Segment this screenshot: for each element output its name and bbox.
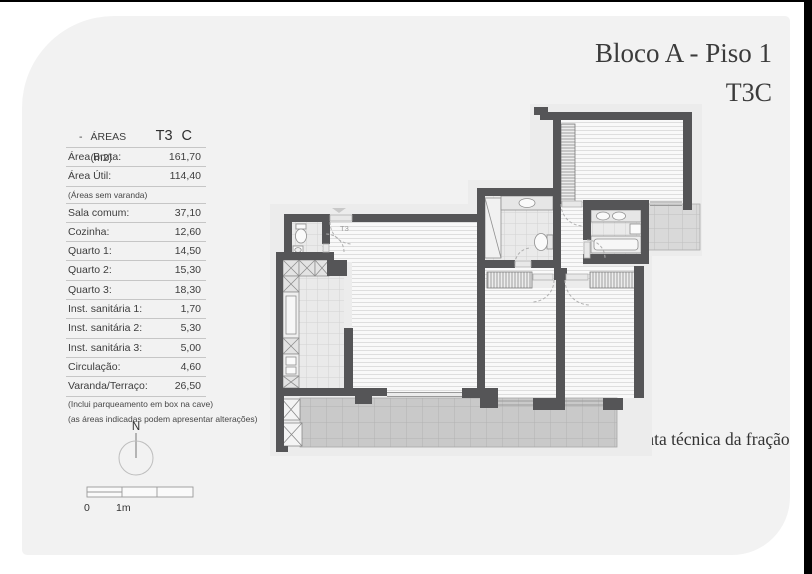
areas-table-row: Cozinha:12,60 xyxy=(66,223,206,242)
scale-bar: 0 1m xyxy=(82,484,202,518)
bedroom3-floor xyxy=(561,120,683,200)
area-row-value: 14,50 xyxy=(175,242,206,260)
header-type: T3 xyxy=(156,126,173,147)
areas-table-row: Circulação:4,60 xyxy=(66,358,206,377)
scale-one-meter-label: 1m xyxy=(116,502,131,514)
area-row-label: Inst. sanitária 1: xyxy=(66,300,142,318)
area-row-label: Quarto 3: xyxy=(66,281,112,299)
bedroom2-wardrobe xyxy=(590,272,635,288)
north-compass-icon: N xyxy=(112,418,162,480)
area-row-label: Área Bruta: xyxy=(66,148,121,166)
bedroom2-floor xyxy=(565,288,634,398)
area-row-label: Inst. sanitária 3: xyxy=(66,339,142,357)
entrance-door-leaf xyxy=(330,215,352,221)
area-row-value: 114,40 xyxy=(170,167,206,185)
area-row-value: 37,10 xyxy=(175,204,206,222)
balcony-floor xyxy=(648,204,700,250)
areas-table-row: Inst. sanitária 3:5,00 xyxy=(66,339,206,358)
areas-table-row: Varanda/Terraço:26,50 xyxy=(66,377,206,396)
area-row-label: Varanda/Terraço: xyxy=(66,377,148,395)
area-row-value: 1,70 xyxy=(181,300,206,318)
document-canvas: Bloco A - Piso 1 T3C - ÁREAS (m2) T3 C Á… xyxy=(0,2,804,574)
area-row-value: 12,60 xyxy=(175,223,206,241)
bedroom1-wardrobe xyxy=(487,272,532,288)
areas-table-row: Sala comum:37,10 xyxy=(66,204,206,223)
areas-table-note: (Áreas sem varanda) xyxy=(66,187,206,204)
header-variant: C xyxy=(182,126,192,147)
living-room-floor xyxy=(352,260,477,392)
area-row-label: Quarto 2: xyxy=(66,261,112,279)
scale-zero-label: 0 xyxy=(84,502,90,514)
header-dash: - xyxy=(79,127,83,148)
page-title: Bloco A - Piso 1 xyxy=(595,38,772,68)
entrance-label: T3 xyxy=(340,224,349,233)
areas-table-rows: Área Bruta:161,70Área Útil:114,40(Áreas … xyxy=(66,148,206,428)
sheet-title-block: Bloco A - Piso 1 T3C xyxy=(595,38,772,107)
floorplan-drawing: T3 xyxy=(262,102,722,467)
area-row-value: 18,30 xyxy=(175,281,206,299)
areas-table-footnote: (Inclui parqueamento em box na cave) xyxy=(66,397,206,413)
area-row-label: Sala comum: xyxy=(66,204,129,222)
areas-table-header: - ÁREAS (m2) T3 C xyxy=(66,126,206,148)
areas-table-row: Quarto 2:15,30 xyxy=(66,261,206,280)
area-row-value: 5,30 xyxy=(181,319,206,337)
area-row-label: Quarto 1: xyxy=(66,242,112,260)
areas-table-row: Quarto 3:18,30 xyxy=(66,281,206,300)
area-row-value: 5,00 xyxy=(181,339,206,357)
areas-table-row: Inst. sanitária 1:1,70 xyxy=(66,300,206,319)
areas-table-row: Área Útil:114,40 xyxy=(66,167,206,186)
bedroom1-floor xyxy=(485,288,556,398)
area-row-value: 15,30 xyxy=(175,261,206,279)
areas-table: - ÁREAS (m2) T3 C Área Bruta:161,70Área … xyxy=(66,126,206,428)
area-row-label: Cozinha: xyxy=(66,223,109,241)
area-row-value: 4,60 xyxy=(181,358,206,376)
plan-sheet-page: Bloco A - Piso 1 T3C - ÁREAS (m2) T3 C Á… xyxy=(22,16,790,555)
area-row-label: Circulação: xyxy=(66,358,121,376)
areas-table-row: Quarto 1:14,50 xyxy=(66,242,206,261)
area-row-value: 161,70 xyxy=(169,148,206,166)
compass-north-label: N xyxy=(132,421,140,433)
area-row-value: 26,50 xyxy=(175,377,206,395)
areas-table-row: Inst. sanitária 2:5,30 xyxy=(66,319,206,338)
area-row-label: Área Útil: xyxy=(66,167,111,185)
area-row-label: Inst. sanitária 2: xyxy=(66,319,142,337)
bedroom3-wardrobe xyxy=(561,124,575,204)
